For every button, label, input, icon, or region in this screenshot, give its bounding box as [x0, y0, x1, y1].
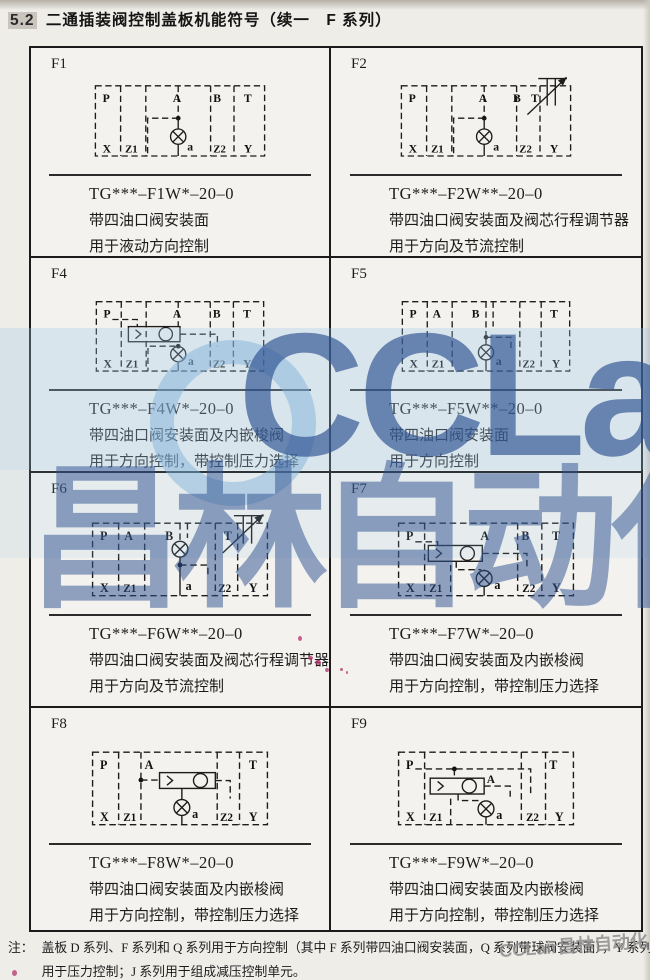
- cell-f4: F4 P A B T X Z1 a: [31, 258, 331, 473]
- shuttle-valve-icon: [160, 773, 216, 789]
- port-b: B: [213, 92, 221, 105]
- divider: [49, 389, 311, 391]
- port-x: X: [100, 810, 109, 824]
- divider: [350, 614, 623, 616]
- port-y: Y: [244, 142, 253, 155]
- port-t: T: [550, 308, 558, 321]
- port-z2: Z2: [526, 812, 539, 824]
- port-x: X: [409, 142, 418, 155]
- port-b: B: [213, 308, 221, 321]
- port-z2: Z2: [213, 143, 226, 155]
- desc1-f7: 带四油口阀安装面及内嵌梭阀: [389, 649, 641, 670]
- port-t: T: [549, 758, 557, 772]
- footnote-line2: 用于压力控制；J 系列用于组成减压控制单元。: [42, 961, 650, 980]
- desc1-f2: 带四油口阀安装面及阀芯行程调节器: [389, 209, 641, 230]
- port-b: B: [472, 308, 480, 321]
- port-a: A: [173, 92, 182, 105]
- scanned-catalog-page: { "page": { "section_number": "5.2", "ti…: [0, 0, 650, 980]
- model-code-f1: TG***–F1W*–20–0: [89, 184, 329, 204]
- port-x: X: [103, 358, 112, 371]
- desc2-f1: 用于液动方向控制: [89, 235, 329, 256]
- port-a: A: [479, 92, 488, 105]
- section-number: 5.2: [8, 12, 37, 29]
- cell-f9: F9 P A T X Z1 a: [331, 708, 641, 930]
- cell-f5: F5 P A B T X Z1 a Z2 Y TG***–F5W**–20–0: [331, 258, 641, 473]
- port-t: T: [552, 529, 560, 543]
- schematic-f9: P A T X Z1 a Z2 Y: [393, 741, 579, 834]
- port-a: A: [173, 308, 182, 321]
- divider: [49, 614, 311, 616]
- shuttle-valve-icon: [428, 545, 482, 561]
- cell-f7: F7 P A B T X Z1 a: [331, 473, 641, 708]
- desc1-f4: 带四油口阀安装面及内嵌梭阀: [89, 424, 329, 445]
- gauge-port-icon: [171, 347, 186, 362]
- port-gauge: a: [496, 355, 502, 368]
- port-a: A: [124, 529, 133, 543]
- desc2-f8: 用于方向控制，带控制压力选择: [89, 904, 329, 925]
- port-z2: Z2: [522, 583, 535, 595]
- port-p: P: [103, 308, 110, 321]
- port-z2: Z2: [522, 359, 534, 371]
- symbol-table: F1 P A B T X Z1 a Z2 Y TG***–F1W*–20–0 带…: [29, 46, 643, 932]
- desc2-f7: 用于方向控制，带控制压力选择: [389, 675, 641, 696]
- divider: [49, 843, 311, 845]
- cell-id-f4: F4: [51, 266, 329, 283]
- model-code-f2: TG***–F2W**–20–0: [389, 184, 641, 204]
- desc2-f4: 用于方向控制，带控制压力选择: [89, 450, 329, 471]
- port-z2: Z2: [218, 583, 231, 595]
- desc1-f8: 带四油口阀安装面及内嵌梭阀: [89, 878, 329, 899]
- desc1-f5: 带四油口阀安装面: [389, 424, 641, 445]
- divider: [350, 174, 623, 176]
- port-y: Y: [550, 142, 559, 155]
- port-b: B: [521, 529, 529, 543]
- schematic-f8: P A T X Z1 a Z2 Y: [87, 741, 273, 834]
- gauge-port-icon: [476, 571, 492, 587]
- shuttle-valve-icon: [128, 327, 180, 342]
- port-p: P: [100, 529, 108, 543]
- port-y: Y: [249, 810, 258, 824]
- desc2-f2: 用于方向及节流控制: [389, 235, 641, 256]
- port-z1: Z1: [429, 583, 442, 595]
- port-y: Y: [555, 810, 564, 824]
- schematic-f7: P A B T X Z1 a Z2 Y: [393, 512, 579, 605]
- port-t: T: [244, 92, 252, 105]
- port-z1: Z1: [125, 143, 138, 155]
- cell-id-f2: F2: [351, 56, 641, 73]
- port-t: T: [224, 529, 232, 543]
- port-z2: Z2: [220, 812, 233, 824]
- port-p: P: [406, 758, 414, 772]
- section-title: 二通插装阀控制盖板机能符号（续一 F 系列）: [46, 12, 392, 29]
- schematic-f5: P A B T X Z1 a Z2 Y: [393, 291, 579, 380]
- port-t: T: [531, 92, 539, 105]
- port-z1: Z1: [123, 812, 136, 824]
- gauge-port-icon: [478, 801, 494, 817]
- divider: [49, 174, 311, 176]
- port-b: B: [165, 529, 173, 543]
- model-code-f7: TG***–F7W*–20–0: [389, 624, 641, 644]
- footnote-line1: 盖板 D 系列、F 系列和 Q 系列用于方向控制（其中 F 系列带四油口阀安装面…: [42, 937, 650, 956]
- model-code-f4: TG***–F4W*–20–0: [89, 399, 329, 419]
- cell-f8: F8 P A T X Z1 a Z2: [31, 708, 331, 930]
- cell-f2: F2 P A B T X Z1 a: [331, 48, 641, 258]
- port-a: A: [433, 308, 442, 321]
- schematic-f6: P A B T X Z1 a Z2 Y: [87, 512, 273, 605]
- gauge-port-icon: [171, 129, 186, 144]
- port-a: A: [145, 758, 154, 772]
- divider: [350, 843, 623, 845]
- desc1-f6: 带四油口阀安装面及阀芯行程调节器: [89, 649, 329, 670]
- port-z1: Z1: [123, 583, 136, 595]
- port-gauge: a: [192, 807, 198, 821]
- gauge-port-icon: [477, 129, 492, 144]
- gauge-port-icon: [478, 345, 493, 360]
- port-z1: Z1: [126, 359, 138, 371]
- cell-id-f6: F6: [51, 481, 329, 498]
- port-y: Y: [552, 581, 561, 595]
- model-code-f5: TG***–F5W**–20–0: [389, 399, 641, 419]
- schematic-f1: P A B T X Z1 a Z2 Y: [87, 75, 273, 165]
- port-p: P: [103, 92, 110, 105]
- port-t: T: [243, 308, 251, 321]
- port-a: A: [487, 774, 495, 786]
- cell-id-f7: F7: [351, 481, 641, 498]
- port-gauge: a: [188, 355, 194, 368]
- desc2-f5: 用于方向控制: [389, 450, 641, 471]
- schematic-f2: P A B T X Z1 a Z2 Y: [393, 75, 579, 165]
- cell-id-f9: F9: [351, 716, 641, 733]
- footnote: 注： 盖板 D 系列、F 系列和 Q 系列用于方向控制（其中 F 系列带四油口阀…: [8, 937, 650, 980]
- port-gauge: a: [187, 141, 193, 154]
- port-z1: Z1: [431, 143, 444, 155]
- port-x: X: [409, 358, 418, 371]
- desc2-f6: 用于方向及节流控制: [89, 675, 329, 696]
- port-x: X: [406, 810, 415, 824]
- port-z2: Z2: [519, 143, 532, 155]
- port-y: Y: [552, 358, 561, 371]
- footnote-label: 注：: [8, 937, 34, 980]
- port-gauge: a: [496, 808, 502, 822]
- port-gauge: a: [493, 141, 499, 154]
- cell-id-f1: F1: [51, 56, 329, 73]
- port-x: X: [100, 581, 109, 595]
- port-x: X: [103, 142, 112, 155]
- cell-id-f8: F8: [51, 716, 329, 733]
- desc2-f9: 用于方向控制，带控制压力选择: [389, 904, 641, 925]
- model-code-f6: TG***–F6W**–20–0: [89, 624, 329, 644]
- desc1-f1: 带四油口阀安装面: [89, 209, 329, 230]
- port-p: P: [406, 529, 414, 543]
- shuttle-valve-icon: [430, 778, 484, 794]
- port-z2: Z2: [213, 359, 225, 371]
- port-z1: Z1: [429, 812, 442, 824]
- gauge-port-icon: [172, 541, 188, 557]
- port-b: B: [513, 92, 521, 105]
- port-p: P: [409, 308, 416, 321]
- model-code-f8: TG***–F8W*–20–0: [89, 853, 329, 873]
- port-a: A: [480, 529, 489, 543]
- divider: [350, 389, 623, 391]
- cell-id-f5: F5: [351, 266, 641, 283]
- cell-f1: F1 P A B T X Z1 a Z2 Y TG***–F1W*–20–0 带…: [31, 48, 331, 258]
- port-z1: Z1: [432, 359, 444, 371]
- schematic-f4: P A B T X Z1 a Z2 Y: [87, 291, 273, 380]
- desc1-f9: 带四油口阀安装面及内嵌梭阀: [389, 878, 641, 899]
- model-code-f9: TG***–F9W*–20–0: [389, 853, 641, 873]
- port-t: T: [249, 758, 257, 772]
- port-y: Y: [249, 581, 258, 595]
- port-p: P: [409, 92, 416, 105]
- gauge-port-icon: [174, 800, 190, 816]
- page-title: 5.2 二通插装阀控制盖板机能符号（续一 F 系列）: [8, 8, 392, 30]
- port-y: Y: [243, 358, 252, 371]
- port-gauge: a: [494, 578, 500, 592]
- port-x: X: [406, 581, 415, 595]
- cell-f6: F6 P A B T X Z: [31, 473, 331, 708]
- port-p: P: [100, 758, 108, 772]
- port-gauge: a: [186, 579, 192, 593]
